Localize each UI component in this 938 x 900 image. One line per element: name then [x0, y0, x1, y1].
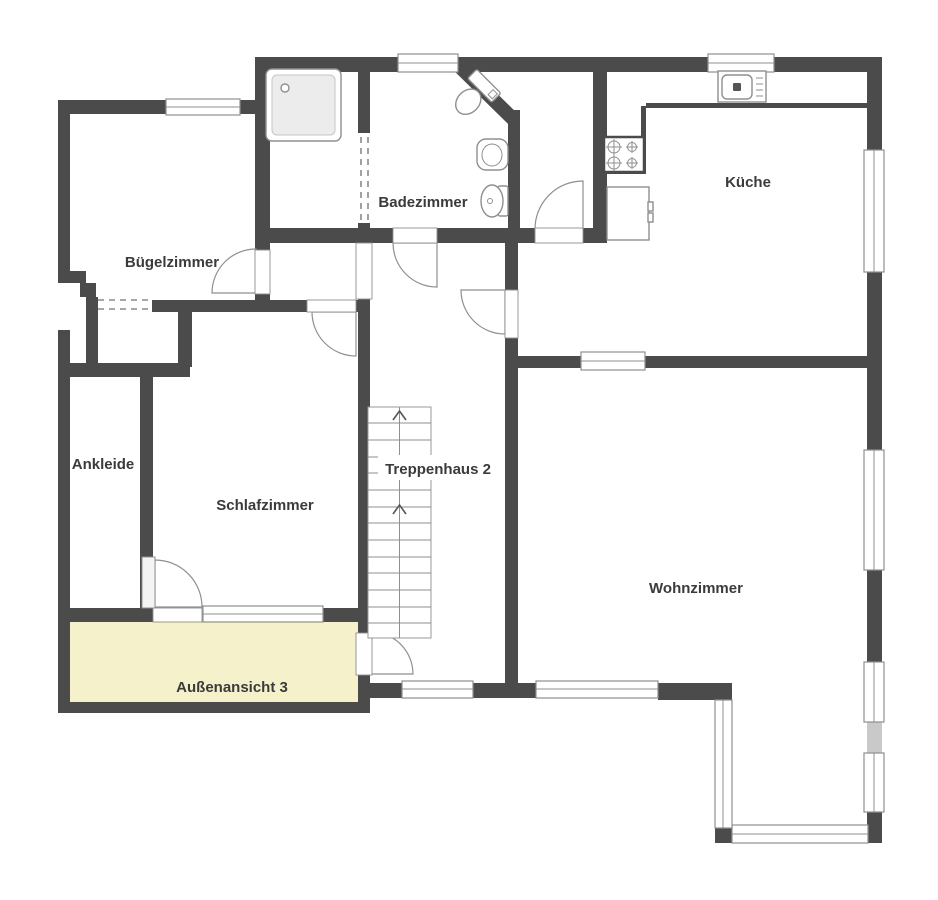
wall-segment	[867, 570, 882, 662]
wall-segment	[86, 297, 98, 365]
wall-segment	[358, 57, 370, 133]
wall-segment	[715, 828, 732, 843]
wall-segment	[358, 683, 402, 698]
door-hall-kitchen	[461, 290, 518, 338]
door-bathroom	[393, 228, 437, 287]
room-label-buegelzimmer: Bügelzimmer	[125, 254, 219, 271]
room-label-ankleide: Ankleide	[72, 456, 135, 473]
shower-icon	[266, 69, 341, 141]
room-label-kueche: Küche	[725, 174, 771, 191]
door-vestibule	[535, 181, 583, 243]
wall-segment	[518, 356, 583, 368]
stairs-up-icon	[368, 407, 431, 638]
wall-segment	[645, 356, 867, 368]
floor-plan: Bügelzimmer Badezimmer Küche Ankleide Sc…	[0, 0, 938, 900]
wall-segment	[505, 243, 518, 290]
room-label-schlafzimmer: Schlafzimmer	[216, 497, 314, 514]
door-bedroom	[307, 300, 356, 356]
room-label-badezimmer: Badezimmer	[378, 194, 467, 211]
wall-segment	[178, 312, 192, 367]
washbasin-icon	[477, 139, 508, 170]
wall-segment	[867, 812, 882, 843]
room-label-treppenhaus: Treppenhaus 2	[385, 461, 491, 478]
window	[203, 606, 323, 622]
window	[732, 825, 868, 843]
window	[715, 700, 732, 828]
wall-segment	[358, 223, 370, 245]
window	[864, 662, 884, 722]
window	[864, 753, 884, 812]
wall-segment	[437, 228, 535, 243]
stove-icon	[604, 137, 644, 172]
wall-segment	[58, 702, 370, 713]
wall-segment	[70, 271, 86, 283]
window	[166, 99, 240, 115]
wall-segment	[255, 228, 395, 243]
wall-segment	[58, 608, 153, 622]
room-label-aussenansicht: Außenansicht 3	[176, 679, 288, 696]
wall-segment	[867, 272, 882, 450]
window	[536, 681, 658, 698]
window	[864, 150, 884, 272]
wall-segment	[152, 300, 307, 312]
wall-segment	[505, 338, 518, 698]
wall-segment	[255, 57, 882, 72]
room-label-wohnzimmer: Wohnzimmer	[649, 580, 743, 597]
refrigerator-icon	[607, 187, 653, 240]
wall-segment	[867, 57, 882, 152]
wall-segment	[58, 330, 70, 712]
window	[402, 681, 473, 698]
wall-segment	[658, 683, 732, 700]
window	[398, 54, 458, 72]
bidet-icon	[481, 185, 508, 217]
wall-segment	[58, 363, 190, 377]
wall-segment	[80, 283, 96, 297]
floor-plan-page: Bügelzimmer Badezimmer Küche Ankleide Sc…	[0, 0, 938, 900]
glass-door-panel	[867, 722, 882, 753]
interior-window	[581, 352, 645, 370]
wall-opening	[356, 243, 372, 299]
windows	[166, 54, 884, 843]
kitchen-sink-icon	[718, 71, 766, 102]
window	[864, 450, 884, 570]
wall-segment	[255, 294, 270, 312]
wall-segment	[58, 100, 70, 283]
door-ironing-room	[212, 249, 270, 294]
counter-edge	[646, 103, 867, 108]
wall-segment	[323, 608, 358, 622]
wall-segment	[508, 110, 520, 228]
toilet-icon	[446, 69, 500, 123]
wall-segment	[473, 683, 536, 698]
window	[708, 54, 774, 72]
